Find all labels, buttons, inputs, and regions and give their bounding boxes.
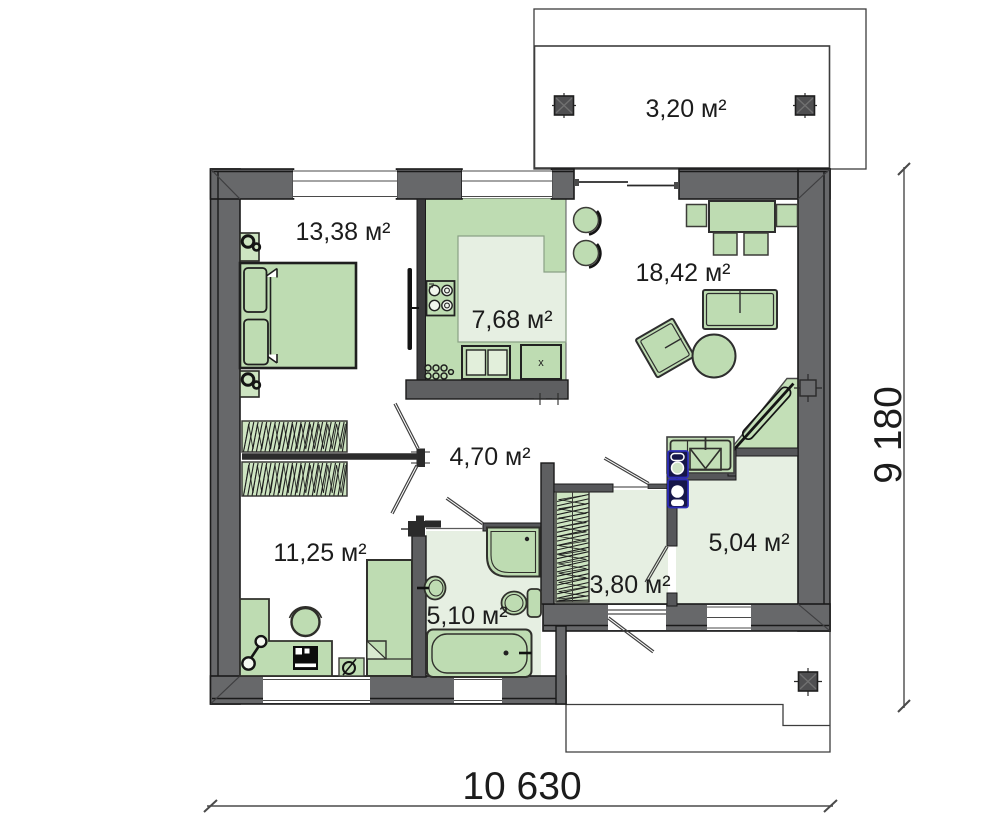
svg-text:18,42 м²: 18,42 м²	[635, 259, 730, 287]
svg-text:3,80 м²: 3,80 м²	[589, 571, 670, 599]
svg-text:5,10 м²: 5,10 м²	[426, 602, 507, 630]
svg-text:13,38 м²: 13,38 м²	[295, 218, 390, 246]
svg-text:5,04 м²: 5,04 м²	[708, 529, 789, 557]
svg-text:9 180: 9 180	[867, 386, 910, 484]
svg-text:3,20 м²: 3,20 м²	[645, 95, 726, 123]
svg-text:4,70 м²: 4,70 м²	[449, 443, 530, 471]
svg-text:11,25 м²: 11,25 м²	[273, 539, 366, 567]
svg-text:10 630: 10 630	[462, 765, 581, 808]
svg-text:7,68 м²: 7,68 м²	[471, 306, 552, 334]
svg-text:x: x	[538, 357, 544, 369]
